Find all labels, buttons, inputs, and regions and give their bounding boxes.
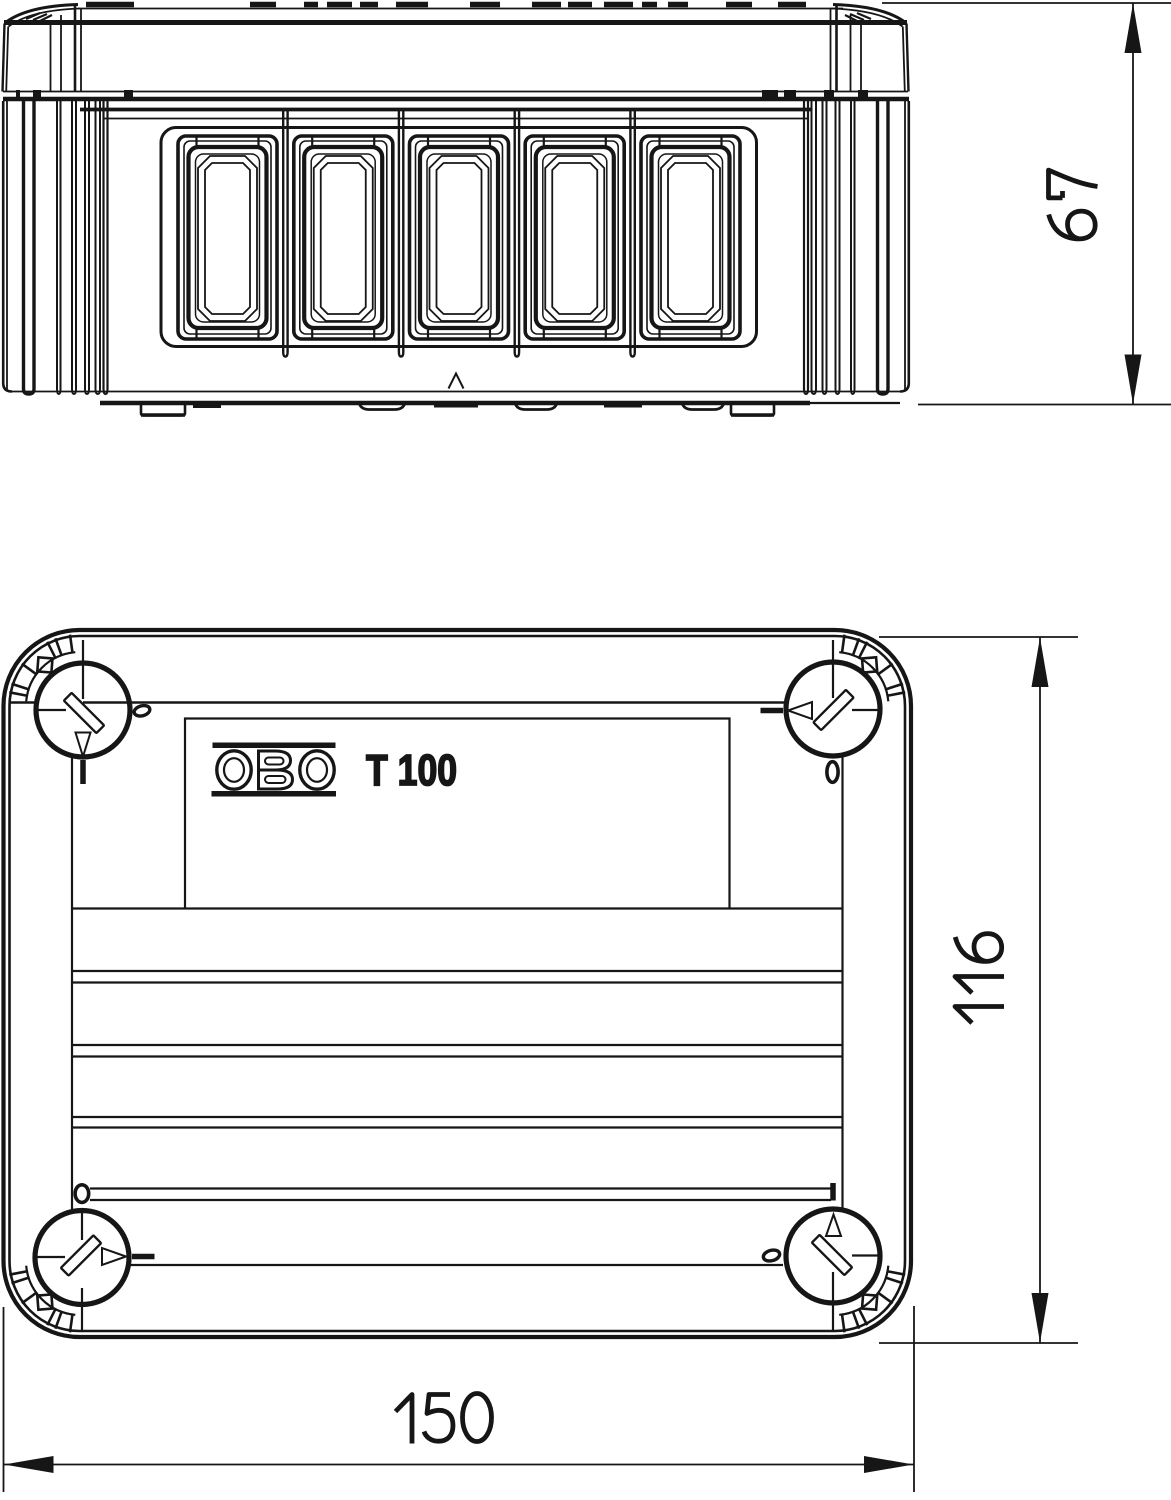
svg-text:T 100: T 100 bbox=[366, 747, 457, 795]
